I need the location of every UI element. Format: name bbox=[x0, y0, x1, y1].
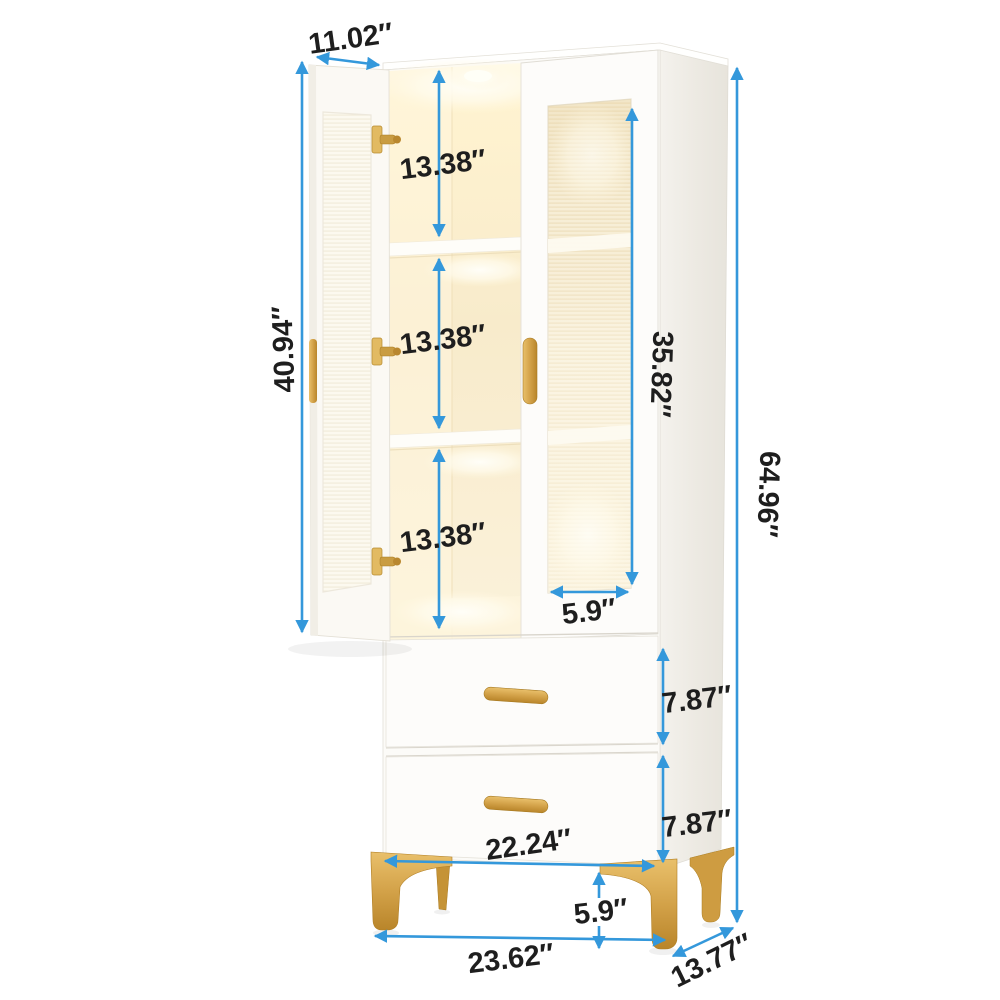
label-base-width: 23.62″ bbox=[466, 938, 556, 980]
label-leg-height: 5.9″ bbox=[572, 893, 630, 931]
left-door-handle bbox=[309, 339, 317, 403]
floor-glow bbox=[390, 590, 534, 634]
left-door-glass bbox=[323, 112, 371, 592]
right-door-handle bbox=[523, 338, 537, 404]
label-glass-door-height: 35.82″ bbox=[643, 331, 678, 419]
leg-back-right bbox=[690, 847, 734, 922]
right-glass-door bbox=[521, 50, 658, 639]
label-total-height: 64.96″ bbox=[750, 451, 785, 539]
label-door-width: 11.02″ bbox=[306, 17, 395, 61]
diagram-canvas: 11.02″ 40.94″ 13.38″ 13.38″ 13.38″ 35.82… bbox=[0, 0, 1000, 1000]
label-glass-width: 5.9″ bbox=[560, 593, 618, 631]
label-door-height: 40.94″ bbox=[267, 305, 302, 393]
product-dimension-diagram: 11.02″ 40.94″ 13.38″ 13.38″ 13.38″ 35.82… bbox=[0, 0, 1000, 1000]
arrow-base-width bbox=[375, 936, 665, 940]
cabinet-side-panel bbox=[660, 50, 728, 869]
leg-back-left bbox=[436, 861, 450, 910]
